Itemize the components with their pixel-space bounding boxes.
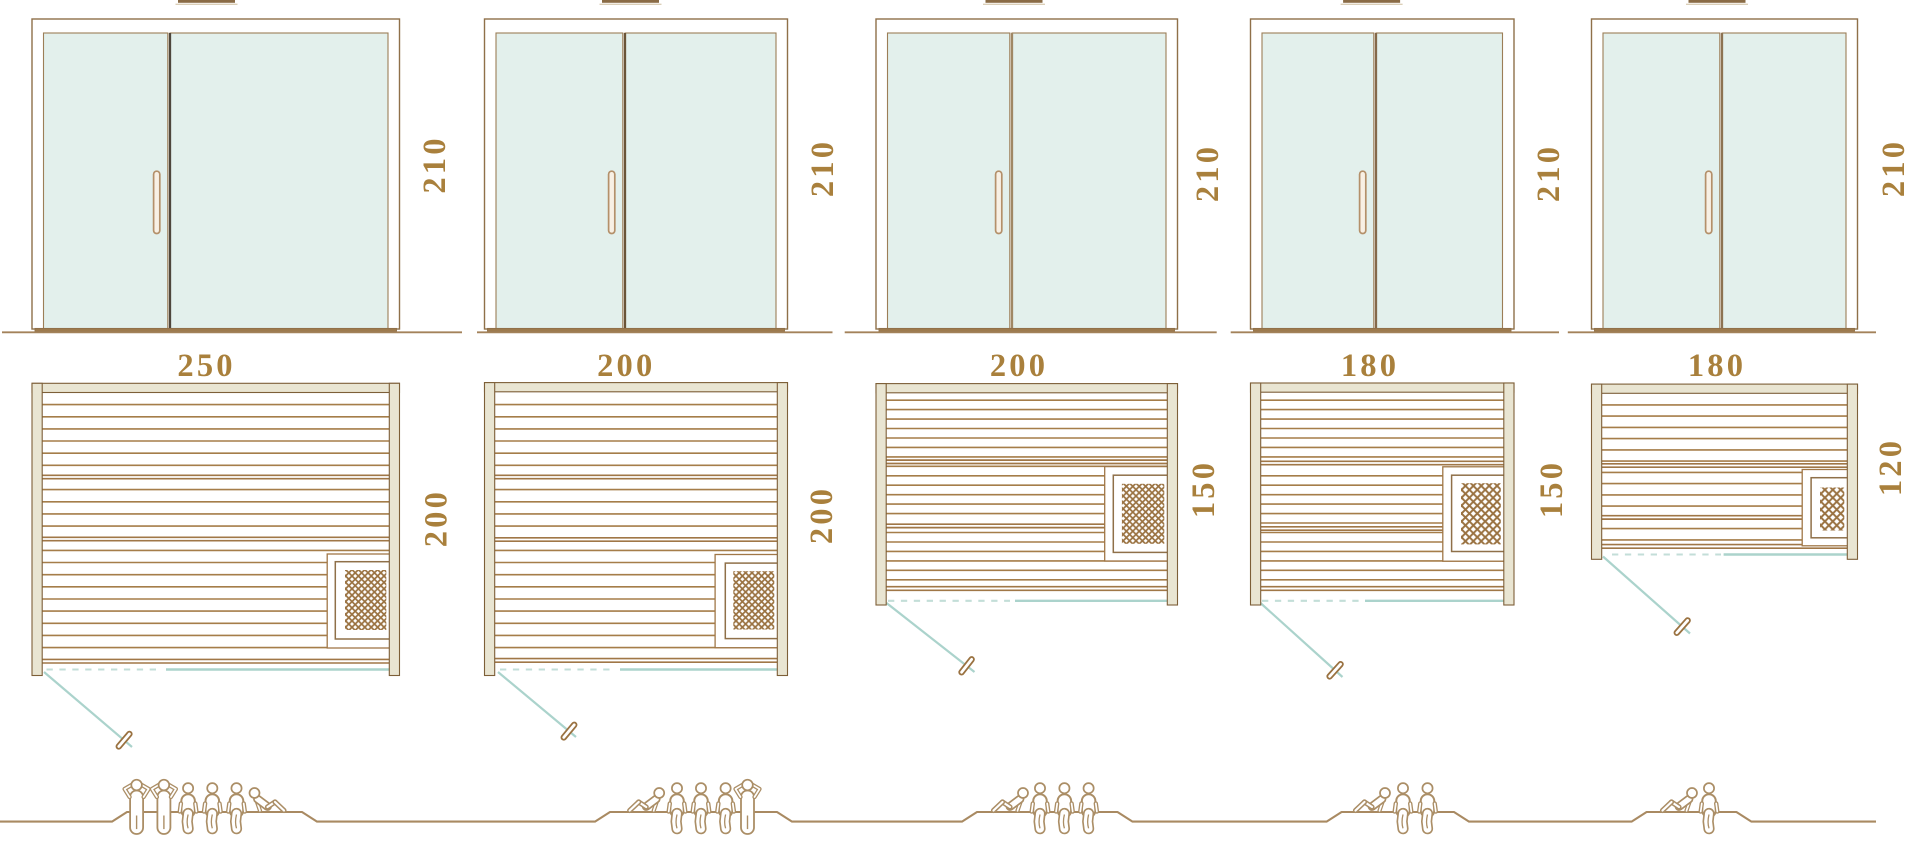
svg-text:150: 150: [1534, 460, 1570, 518]
svg-text:210: 210: [1190, 144, 1226, 202]
svg-text:200: 200: [419, 489, 455, 547]
svg-text:180: 180: [1341, 348, 1399, 384]
svg-text:200: 200: [597, 348, 655, 384]
svg-text:210: 210: [1876, 139, 1912, 197]
svg-text:210: 210: [1531, 144, 1567, 202]
svg-text:200: 200: [804, 486, 840, 544]
svg-text:120: 120: [1873, 438, 1909, 496]
svg-text:210: 210: [417, 135, 453, 193]
svg-text:210: 210: [805, 139, 841, 197]
svg-text:200: 200: [990, 348, 1048, 384]
svg-text:250: 250: [177, 348, 235, 384]
svg-text:180: 180: [1688, 348, 1746, 384]
svg-text:150: 150: [1186, 460, 1222, 518]
